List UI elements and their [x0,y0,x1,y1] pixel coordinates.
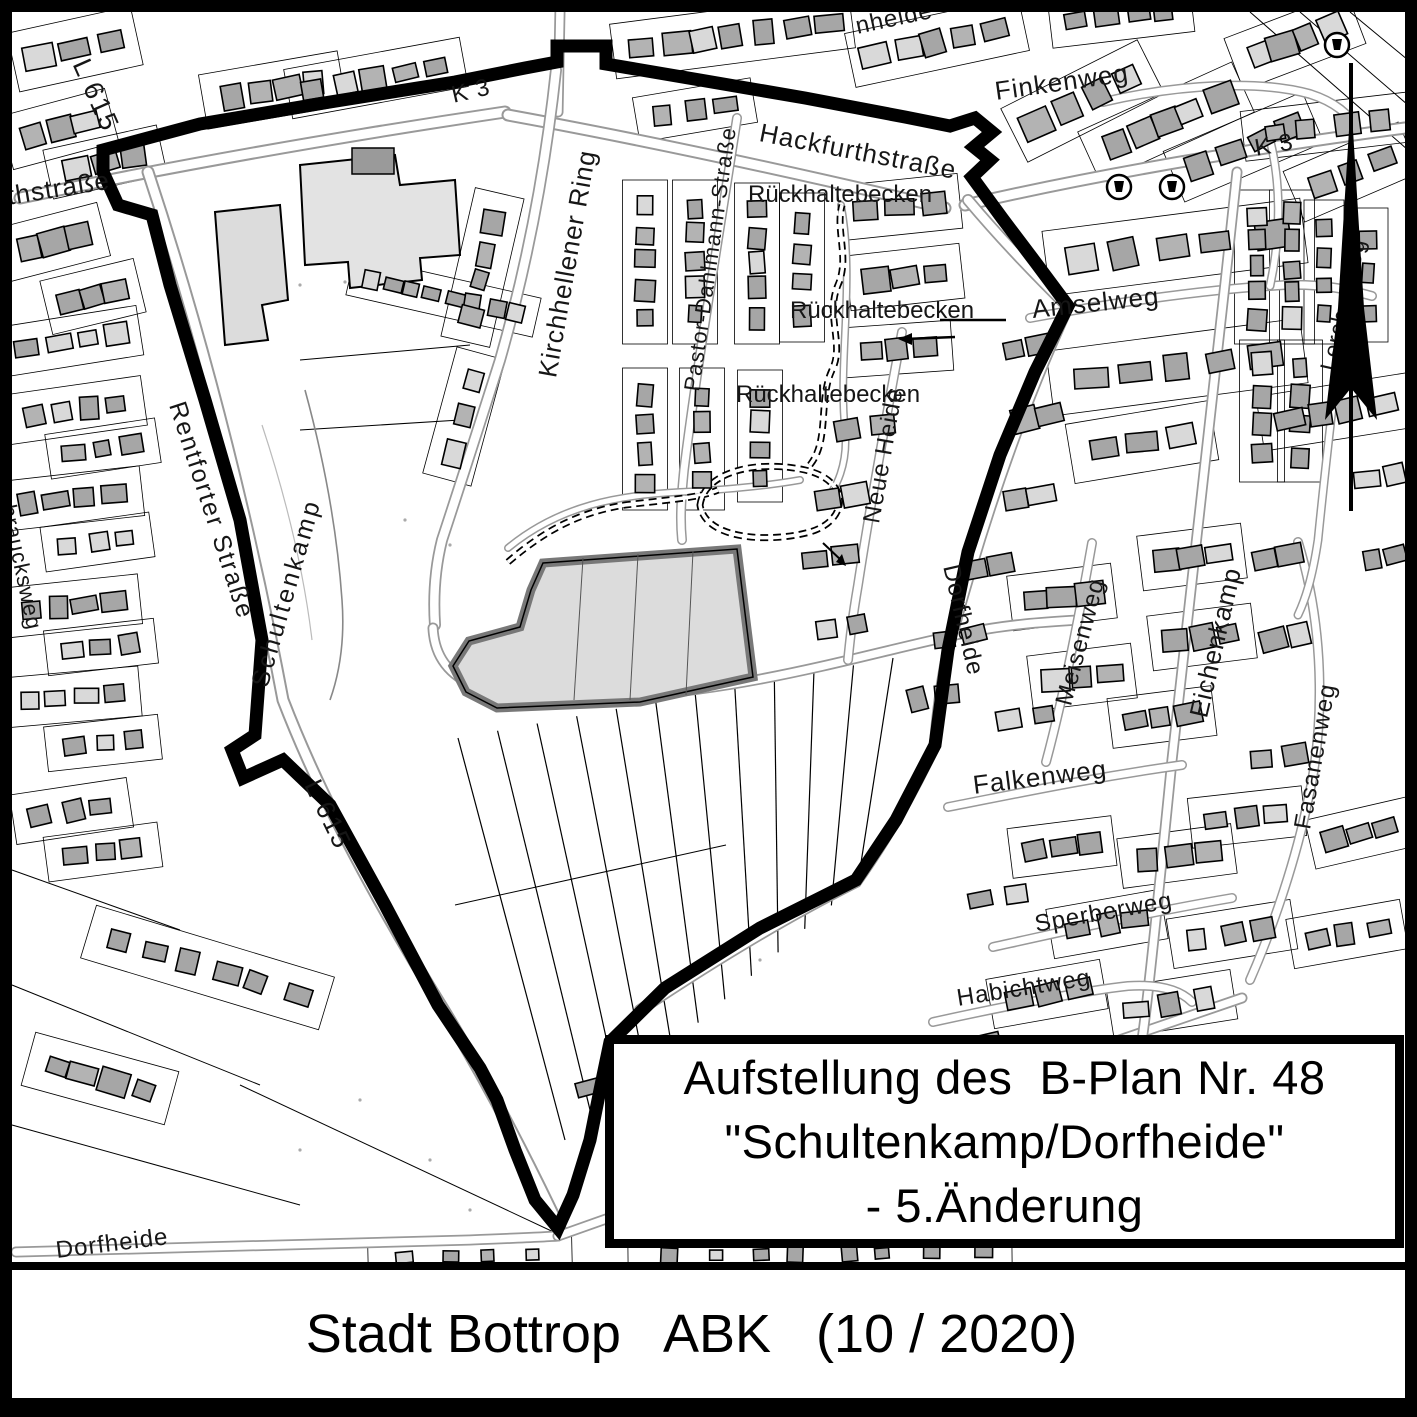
frame-top [0,0,1417,12]
title-line-3: - 5.Änderung [866,1174,1144,1238]
frame-right [1405,0,1417,1417]
map-footer-divider [0,1262,1417,1270]
title-line-1: Aufstellung des B-Plan Nr. 48 [683,1046,1325,1110]
footer-text: Stadt Bottrop ABK (10 / 2020) [306,1303,1111,1365]
title-box: Aufstellung des B-Plan Nr. 48 "Schultenk… [605,1035,1404,1248]
north-arrow-icon [1316,58,1386,518]
frame-bottom [0,1398,1417,1417]
title-line-2: "Schultenkamp/Dorfheide" [724,1110,1284,1174]
plan-sheet: L 615HackfurthstraßeK 3HackfurthstraßeFi… [0,0,1417,1417]
frame-left [0,0,12,1417]
footer-band: Stadt Bottrop ABK (10 / 2020) [12,1270,1405,1398]
